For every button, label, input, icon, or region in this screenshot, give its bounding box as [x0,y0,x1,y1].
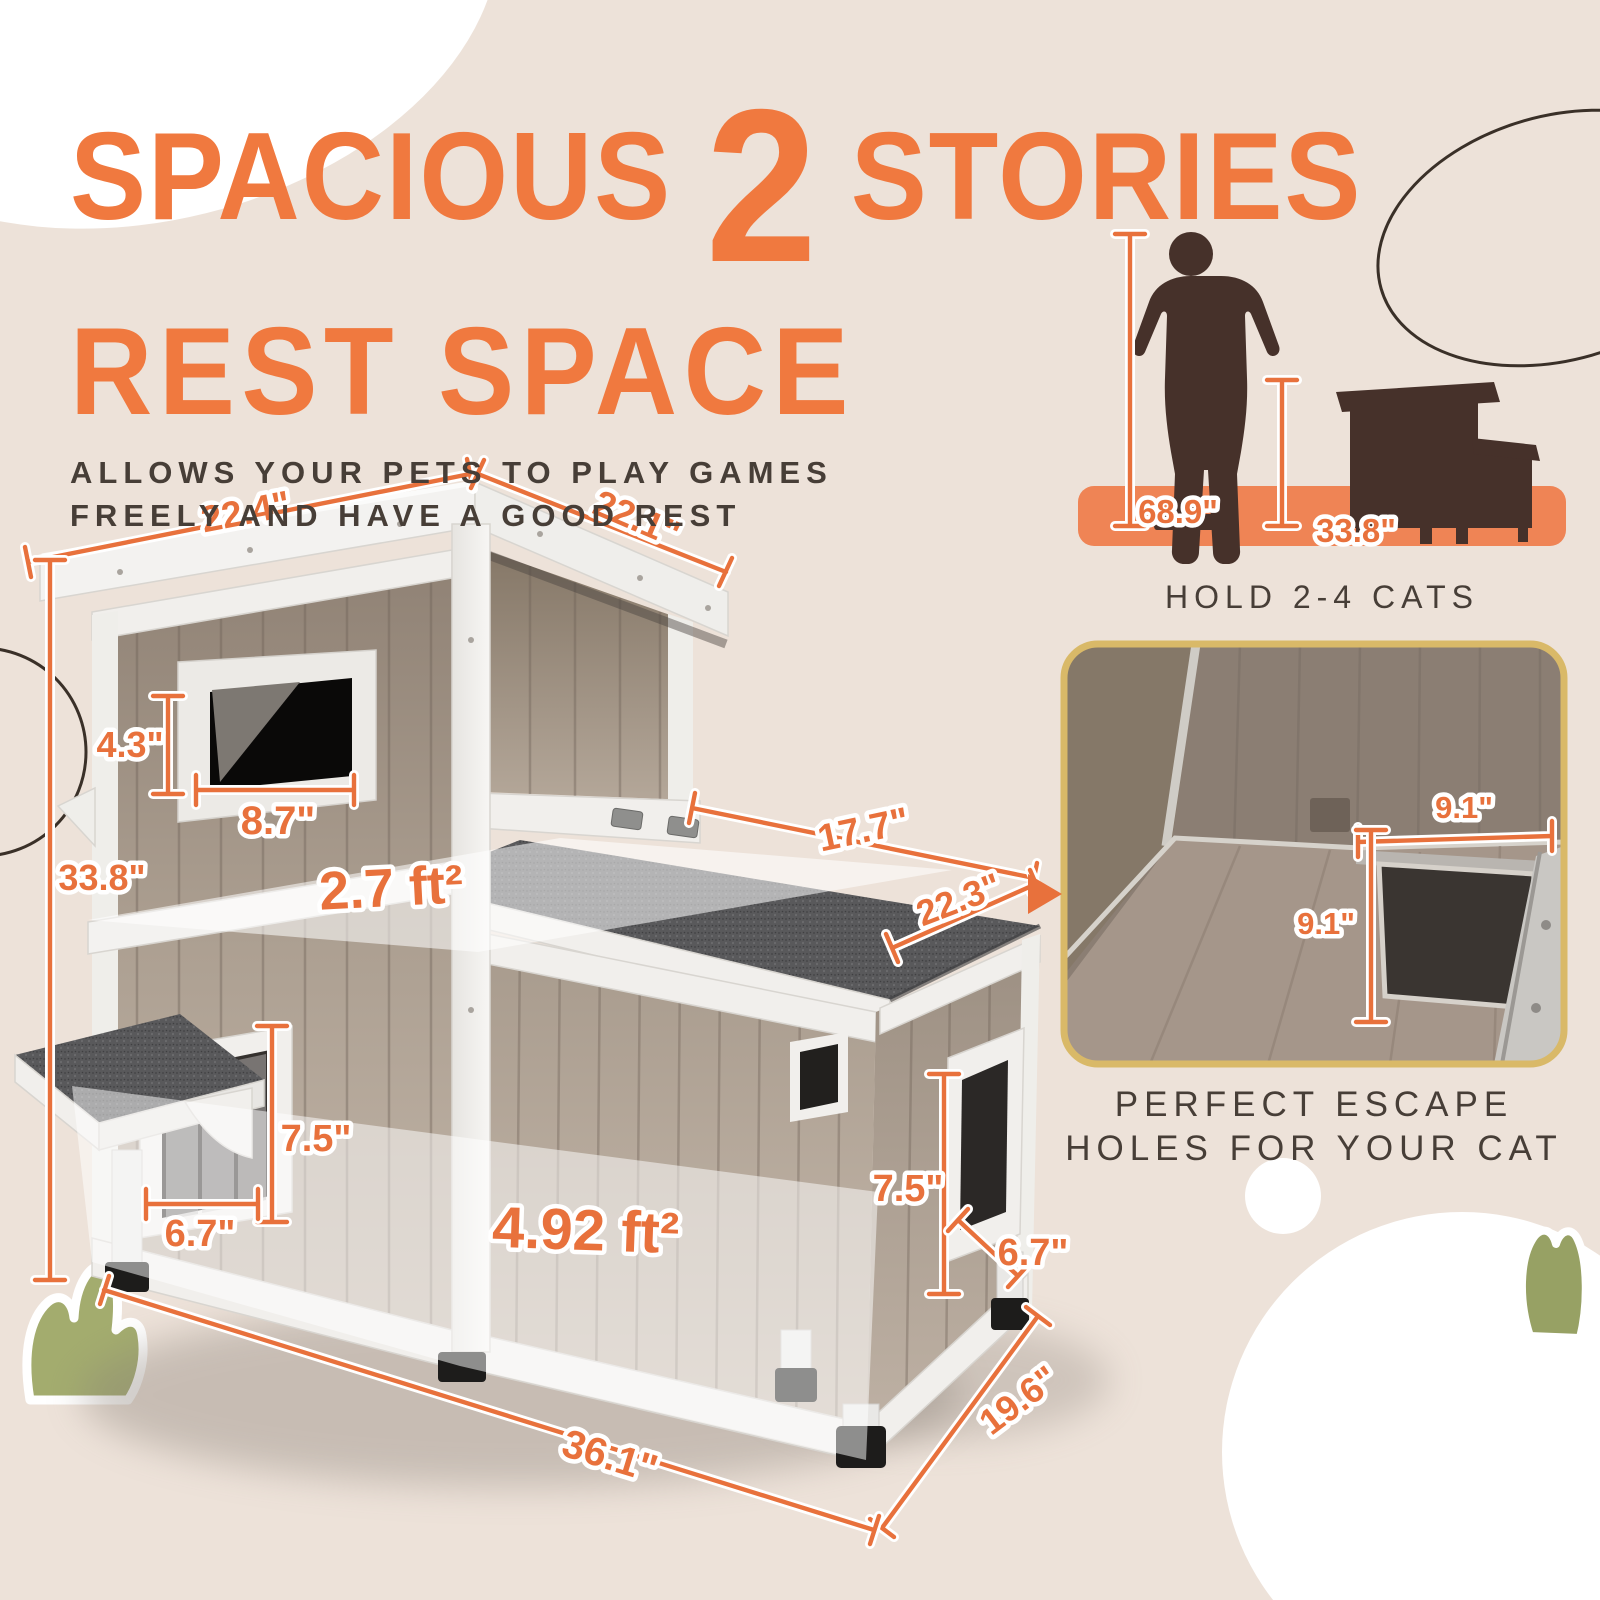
headline-line2: REST SPACE [70,310,1362,434]
label-hole-height: 9.1" [1297,906,1355,941]
label-overall-height: 33.8" [58,857,145,898]
comparison-caption: HOLD 2-4 CATS [1165,579,1479,615]
label-window-width: 8.7" [241,799,316,843]
headline-number: 2 [706,65,818,308]
escape-hole-inset: 9.1" 9.1" PERFECT ESCAPE HOLES FOR YOUR … [1028,644,1564,1168]
label-hole-width: 9.1" [1435,790,1493,825]
headline-line1: SPACIOUS 2 STORIES [70,78,1362,296]
inset-caption-line1: PERFECT ESCAPE [1115,1085,1513,1124]
plant-right [1522,1231,1586,1338]
subtitle-line1: ALLOWS YOUR PETS TO PLAY GAMES [70,452,1475,495]
label-window-height: 4.3" [96,724,163,765]
inset-pointer-arrow [1028,874,1062,914]
cat-house-photo [15,482,1040,1468]
subtitle: ALLOWS YOUR PETS TO PLAY GAMES FREELY AN… [70,452,1475,538]
subtitle-line2: FREELY AND HAVE A GOOD REST [70,495,1475,538]
label-upper-area: 2.7 ft² [318,854,465,921]
headline-block: SPACIOUS 2 STORIES REST SPACE ALLOWS YOU… [70,78,1475,538]
label-front-door-width: 6.7" [165,1213,236,1255]
circle-small-white [1245,1158,1321,1234]
label-side-door-width: 6.7" [998,1232,1069,1274]
ring-left [0,648,86,856]
headline-line1-start: SPACIOUS [70,108,672,246]
inset-caption-line2: HOLES FOR YOUR CAT [1065,1129,1563,1168]
label-lower-area: 4.92 ft² [491,1195,680,1266]
label-front-door-height: 7.5" [281,1118,352,1160]
headline-line1-end: STORIES [851,108,1363,246]
infographic-canvas: 68.9" 33.8" HOLD 2-4 CATS [0,0,1600,1600]
label-side-door-height: 7.5" [873,1168,944,1210]
